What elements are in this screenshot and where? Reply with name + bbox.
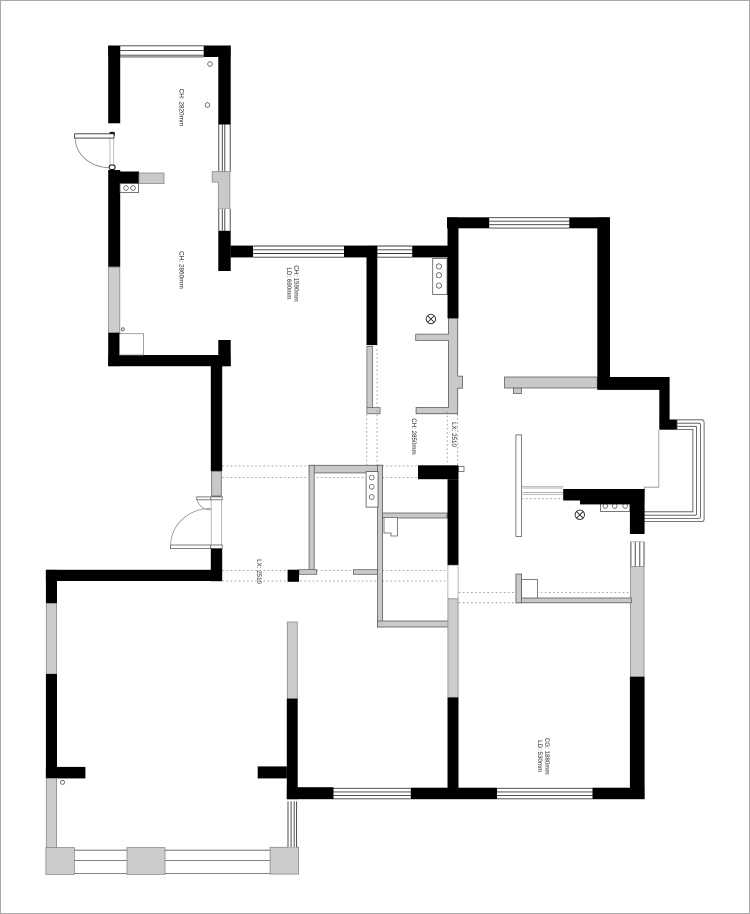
svg-text:LX: 2510: LX: 2510 [450,422,457,447]
svg-text:CH: 2850mm: CH: 2850mm [410,418,417,454]
svg-text:CH: 2860mm: CH: 2860mm [177,251,184,289]
svg-text:LD: 690mm: LD: 690mm [285,268,292,300]
svg-text:LX: 2510: LX: 2510 [255,559,262,584]
svg-text:LD: 530mm: LD: 530mm [536,740,543,772]
svg-text:CH: 2820mm: CH: 2820mm [177,89,184,127]
svg-text:CH: 1590mm: CH: 1590mm [292,265,299,301]
svg-text:CG: 1880mm: CG: 1880mm [543,738,550,775]
